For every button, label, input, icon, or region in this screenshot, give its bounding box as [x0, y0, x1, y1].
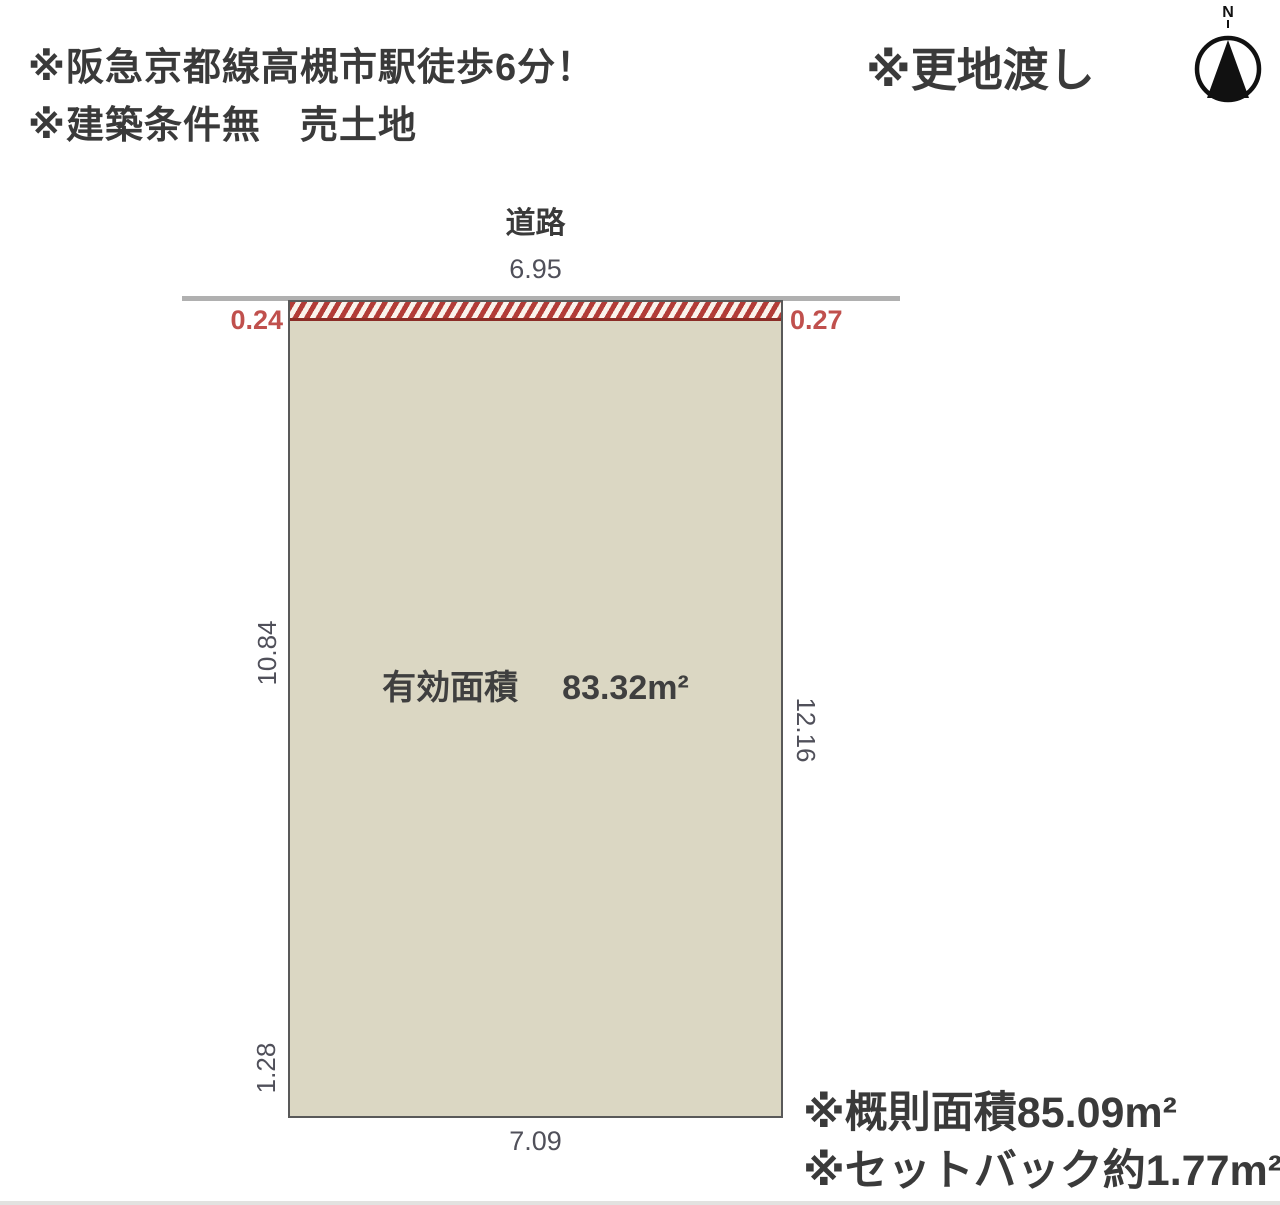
compass-graphic [1192, 20, 1264, 108]
approx-area-note: ※概則面積85.09m² [803, 1078, 1177, 1140]
effective-area-label: 有効面積 [382, 669, 518, 707]
road-label: 道路 [288, 198, 783, 242]
effective-area-value: 83.32m² [562, 669, 689, 707]
setback-area-note: ※セットバック約1.77m² [803, 1136, 1280, 1198]
left-side-dimension: 10.84 [252, 593, 282, 713]
north-compass-icon: N [1192, 6, 1264, 110]
vacant-land-note: ※更地渡し [866, 34, 1095, 100]
header-land-sale-note: ※建築条件無 売土地 [28, 94, 417, 149]
left-lower-dimension: 1.28 [251, 1008, 281, 1128]
land-plot-shape [288, 300, 783, 1118]
road-frontage-dimension: 6.95 [288, 254, 783, 285]
page-bottom-edge-line [0, 1201, 1280, 1205]
setback-left-dimension: 0.24 [195, 305, 283, 336]
setback-hatch-strip [290, 302, 781, 321]
land-plot-diagram-page: ※阪急京都線高槻市駅徒歩6分！ ※建築条件無 売土地 ※更地渡し N 道路 6.… [0, 0, 1280, 1205]
bottom-side-dimension: 7.09 [288, 1126, 783, 1157]
right-side-dimension: 12.16 [791, 670, 821, 790]
header-station-note: ※阪急京都線高槻市駅徒歩6分！ [28, 36, 595, 91]
effective-area-text: 有効面積83.32m² [290, 660, 781, 709]
compass-north-label: N [1192, 6, 1264, 20]
setback-right-dimension: 0.27 [790, 305, 843, 336]
